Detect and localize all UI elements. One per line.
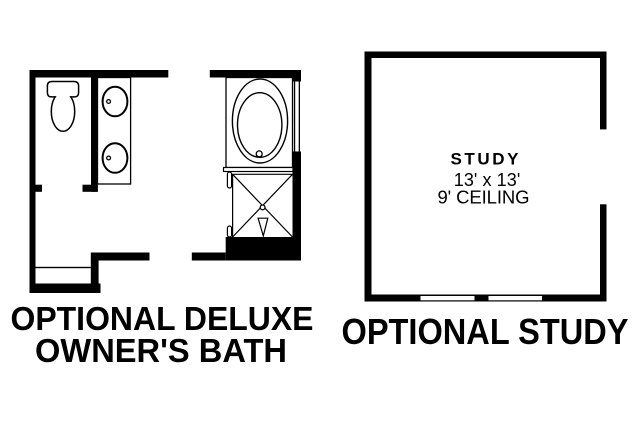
svg-text:OWNER'S BATH: OWNER'S BATH: [35, 332, 287, 369]
svg-text:OPTIONAL STUDY: OPTIONAL STUDY: [342, 311, 629, 352]
svg-text:STUDY: STUDY: [451, 150, 520, 169]
svg-text:9' CEILING: 9' CEILING: [438, 186, 530, 207]
